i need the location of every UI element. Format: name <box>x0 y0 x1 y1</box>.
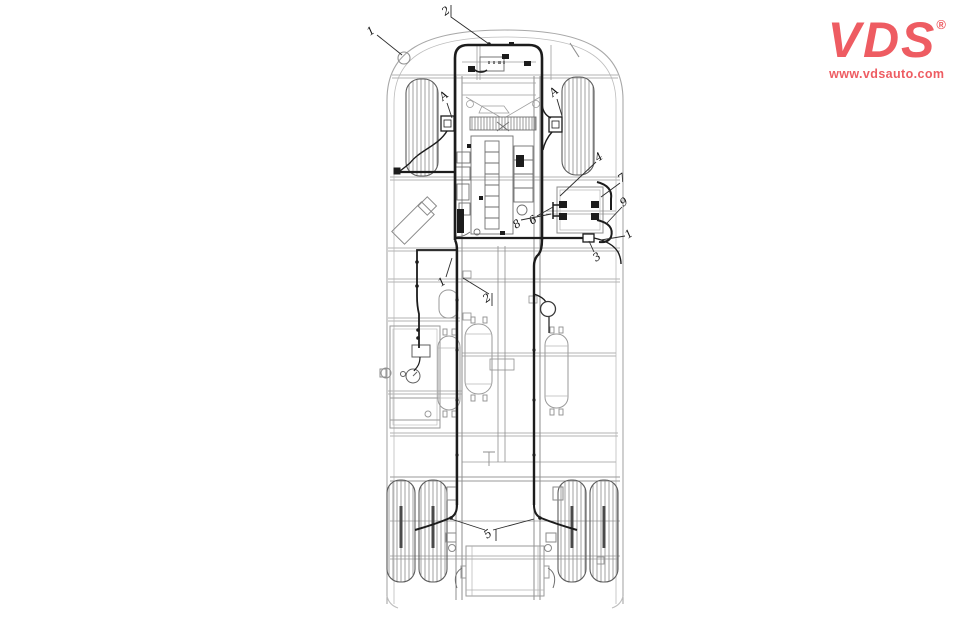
callout-labels: 1 2 A A 4 7 9 1 3 8 6 1 2 5 <box>364 4 635 542</box>
callout-3: 3 <box>590 250 603 265</box>
callout-2-front: 2 <box>438 4 452 19</box>
callout-9: 9 <box>617 195 630 210</box>
logo-wordmark: VDS® <box>828 18 946 62</box>
callout-6: 6 <box>526 213 539 228</box>
callout-1-front: 1 <box>364 24 377 39</box>
pressure-gauge <box>401 345 431 383</box>
callout-1-right: 1 <box>622 227 635 242</box>
chassis-diagram: 1 2 A A 4 7 9 1 3 8 6 1 2 5 <box>0 0 960 617</box>
muffler <box>392 197 437 244</box>
battery-box <box>557 187 603 233</box>
battery-terminals <box>559 201 599 220</box>
logo-website[interactable]: www.vdsauto.com <box>828 67 946 81</box>
equipment-compartment <box>380 326 440 428</box>
callout-7: 7 <box>615 171 628 186</box>
logo-text: VDS <box>828 12 937 68</box>
rear-overhang <box>446 487 563 596</box>
screenshot-canvas: 1 2 A A 4 7 9 1 3 8 6 1 2 5 VDS® www.vds… <box>0 0 960 617</box>
callout-2-mid: 2 <box>479 291 493 306</box>
callout-8: 8 <box>510 217 523 232</box>
callout-A-right: A <box>546 84 561 100</box>
registered-mark-icon: ® <box>936 17 946 32</box>
callout-5-rear: 5 <box>481 527 494 542</box>
vds-logo: VDS® www.vdsauto.com <box>828 18 946 81</box>
